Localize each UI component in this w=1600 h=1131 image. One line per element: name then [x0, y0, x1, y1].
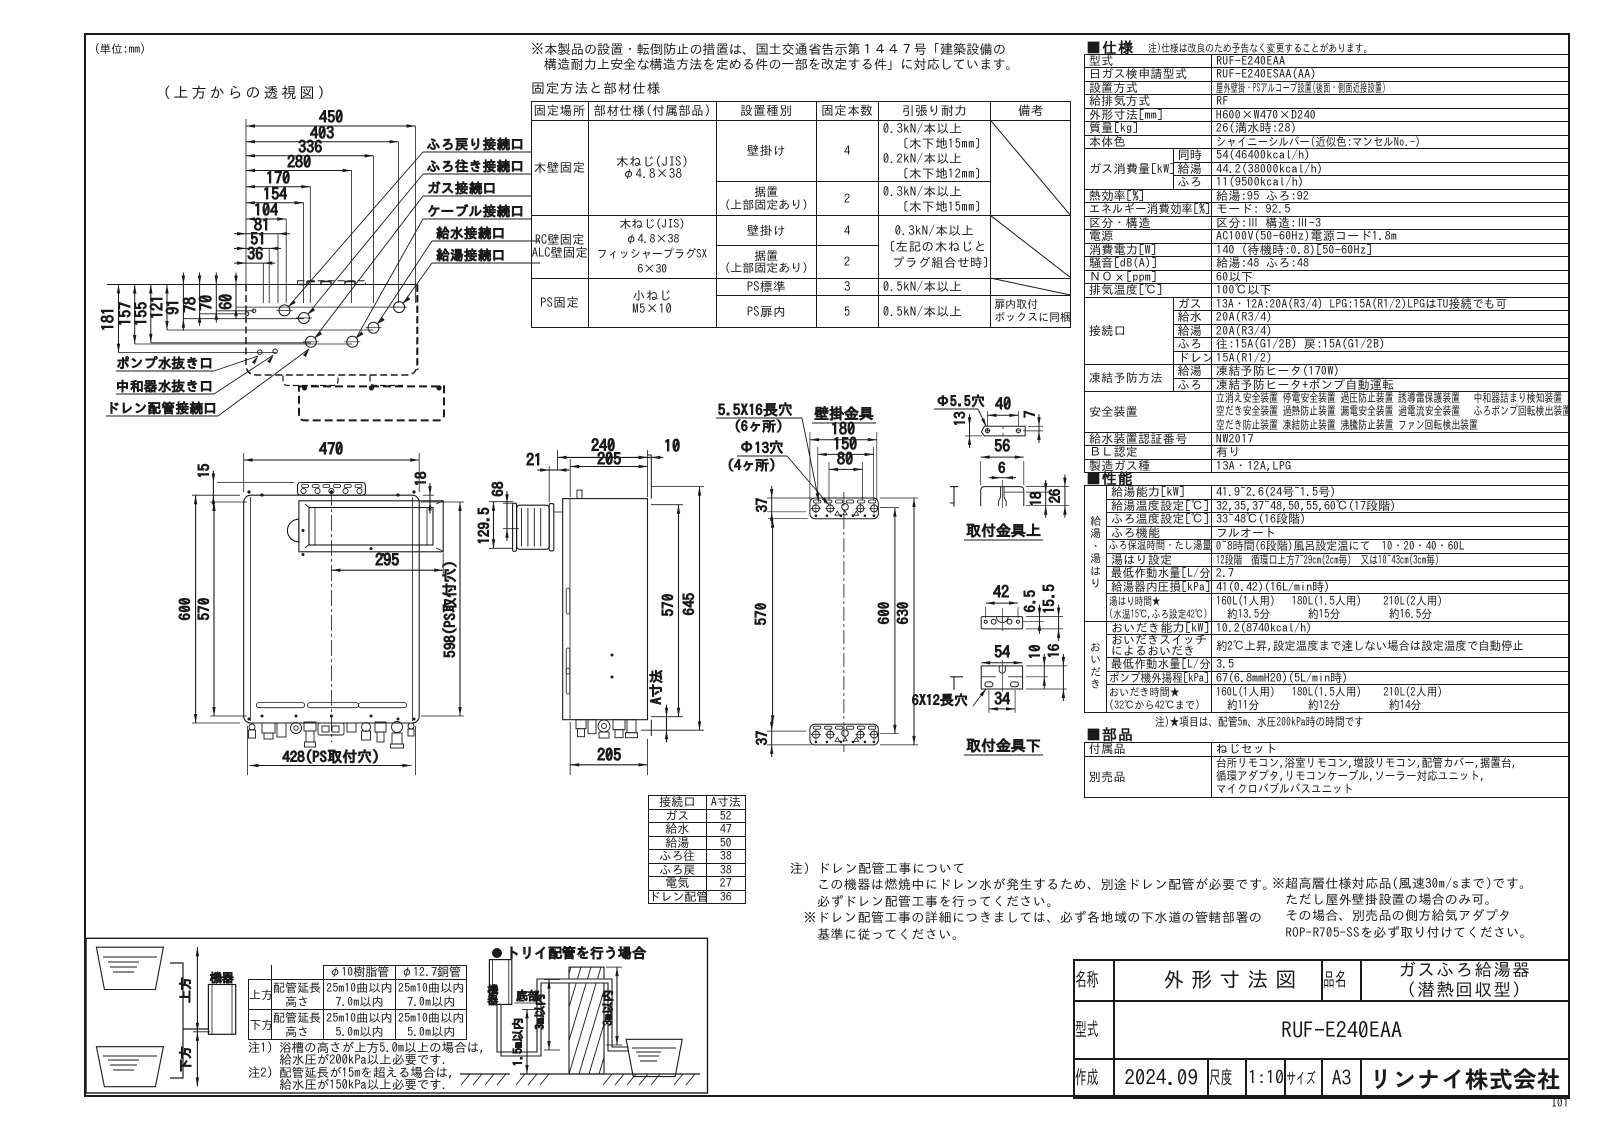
svg-text:トリイ配管を行う場合: トリイ配管を行う場合 [506, 945, 646, 960]
svg-text:3m以内: 3m以内 [534, 994, 546, 1030]
svg-text:下方: 下方 [179, 1046, 192, 1072]
svg-text:3m以内: 3m以内 [602, 990, 614, 1026]
svg-text:1.5m以内: 1.5m以内 [512, 1018, 524, 1066]
svg-text:機器: 機器 [487, 984, 499, 1006]
svg-text:機器: 機器 [210, 972, 234, 984]
svg-text:上方: 上方 [179, 977, 192, 1003]
